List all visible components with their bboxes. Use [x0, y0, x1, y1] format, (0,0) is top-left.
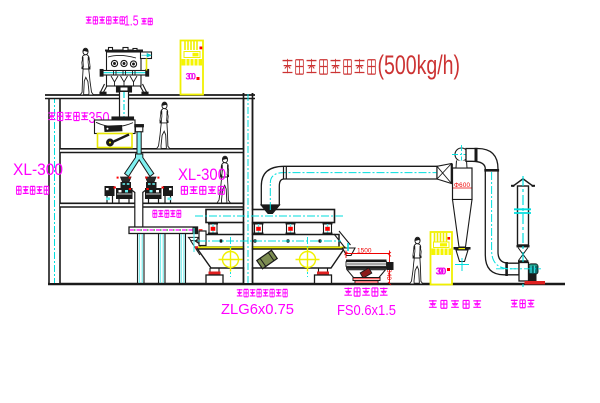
svg-text:1.5: 1.5 — [124, 13, 139, 30]
svg-text:1500: 1500 — [357, 248, 372, 255]
svg-text:XL-300: XL-300 — [13, 160, 63, 179]
svg-text:300: 300 — [186, 72, 197, 82]
svg-text:XL-300: XL-300 — [178, 165, 226, 184]
svg-text:FS0.6x1.5: FS0.6x1.5 — [337, 302, 396, 319]
svg-text:ZLG6x0.75: ZLG6x0.75 — [221, 301, 294, 318]
svg-text:340: 340 — [385, 269, 392, 280]
svg-text:(500kg/h): (500kg/h) — [378, 50, 461, 80]
svg-text:300: 300 — [436, 266, 447, 278]
